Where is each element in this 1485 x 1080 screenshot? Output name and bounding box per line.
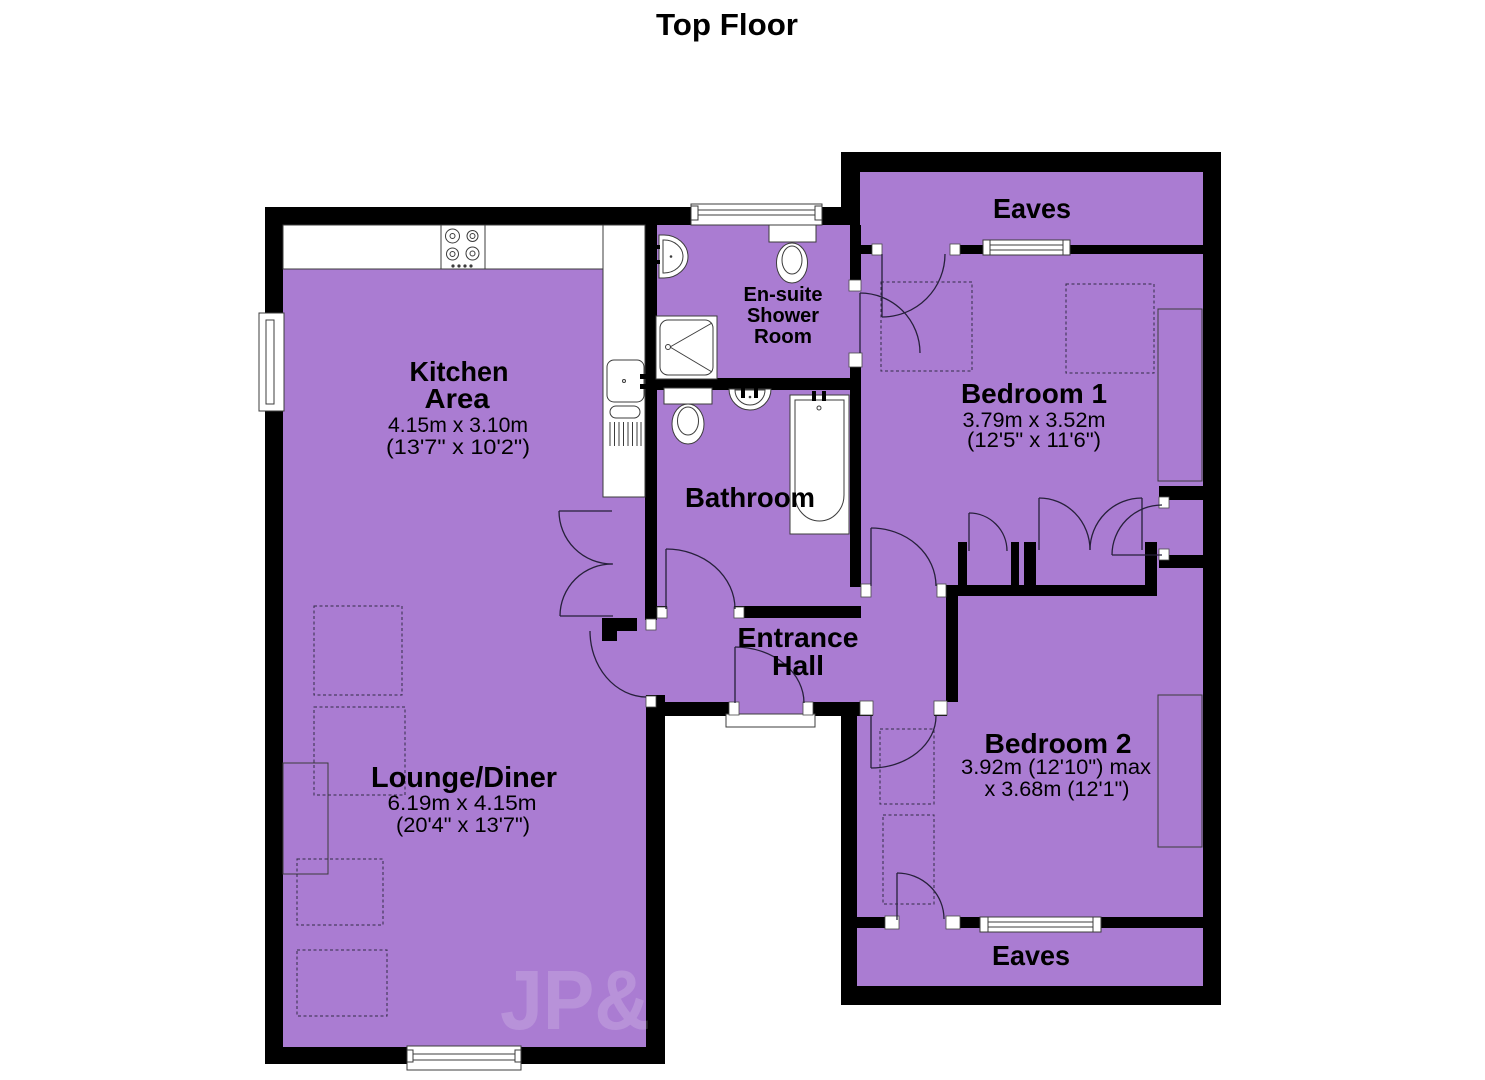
svg-text:Hall: Hall xyxy=(772,650,824,681)
svg-text:Bedroom 1: Bedroom 1 xyxy=(961,378,1107,409)
svg-text:Bedroom 2: Bedroom 2 xyxy=(985,728,1132,759)
svg-text:(12'5" x 11'6"): (12'5" x 11'6") xyxy=(967,429,1101,452)
svg-text:JP&: JP& xyxy=(500,953,650,1047)
svg-text:(20'4" x 13'7"): (20'4" x 13'7") xyxy=(396,814,530,837)
svg-text:Eaves: Eaves xyxy=(992,940,1070,971)
svg-text:6.19m x 4.15m: 6.19m x 4.15m xyxy=(388,792,537,815)
svg-text:Shower: Shower xyxy=(747,305,819,327)
svg-text:Top Floor: Top Floor xyxy=(656,7,798,42)
svg-text:(13'7" x 10'2"): (13'7" x 10'2") xyxy=(386,436,530,459)
svg-text:Entrance: Entrance xyxy=(738,622,859,653)
svg-text:Bathroom: Bathroom xyxy=(685,482,815,513)
svg-text:Room: Room xyxy=(754,326,812,348)
svg-text:En-suite: En-suite xyxy=(744,284,823,306)
svg-text:x 3.68m (12'1"): x 3.68m (12'1") xyxy=(985,778,1130,801)
svg-text:4.15m x 3.10m: 4.15m x 3.10m xyxy=(388,414,528,437)
svg-text:Area: Area xyxy=(425,383,490,414)
svg-text:Lounge/Diner: Lounge/Diner xyxy=(371,762,557,794)
svg-text:Eaves: Eaves xyxy=(993,193,1071,224)
svg-text:3.92m (12'10") max: 3.92m (12'10") max xyxy=(961,756,1152,779)
